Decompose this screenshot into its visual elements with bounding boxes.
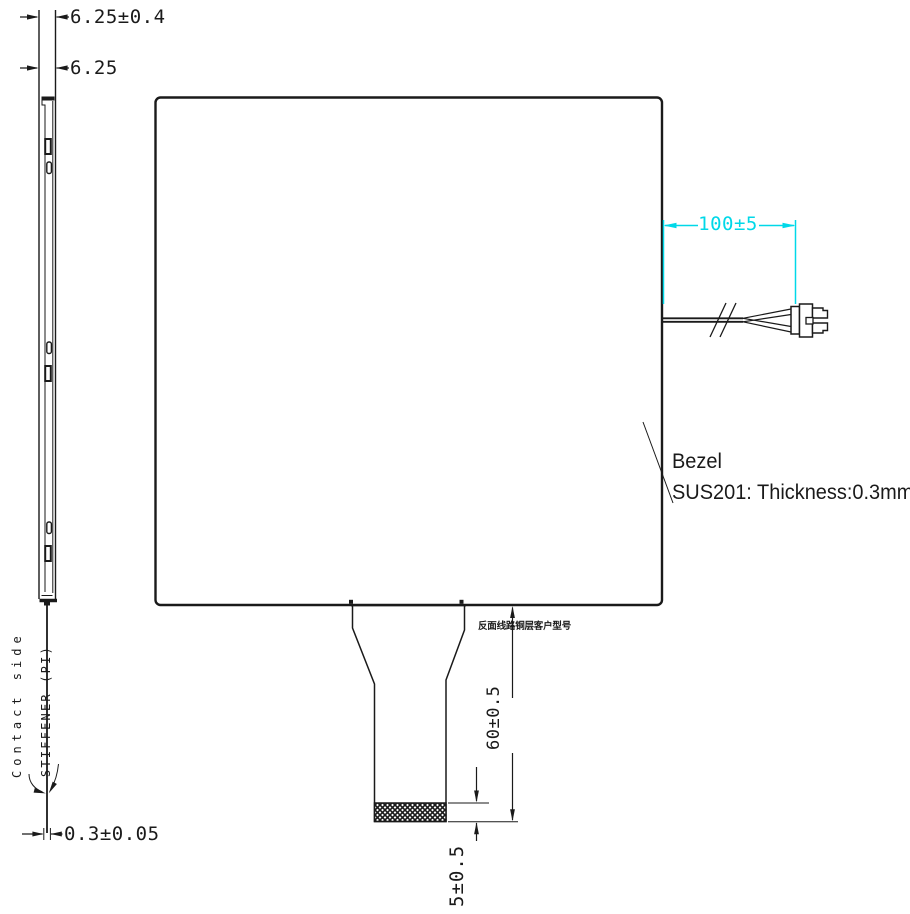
leader-arrow bbox=[34, 788, 46, 793]
dim-arrow-right bbox=[783, 223, 796, 229]
dim-tail-length: 60±0.5 bbox=[486, 686, 503, 750]
dim-arrow-left bbox=[664, 223, 677, 229]
leader-arrow bbox=[49, 782, 57, 794]
dim-arrow bbox=[32, 832, 43, 837]
dim-arrow bbox=[27, 14, 39, 19]
tail-notch-left bbox=[349, 600, 353, 604]
dim-arrow bbox=[56, 65, 68, 70]
side-feature-slot bbox=[45, 366, 51, 381]
side-view-top-bend-step bbox=[42, 100, 45, 111]
engineering-drawing: 6.25±0.4 6.25 0.3±0.05 100±5 Bezel SUS20… bbox=[0, 0, 910, 914]
tail-notch-right bbox=[460, 600, 464, 604]
cable-assembly bbox=[662, 303, 828, 337]
bezel-label-line1: Bezel bbox=[672, 451, 722, 472]
side-feature-pin bbox=[47, 342, 52, 354]
side-view-bottom-tab bbox=[44, 602, 50, 606]
side-feature-pin bbox=[47, 522, 52, 534]
side-feature-slot bbox=[45, 139, 51, 154]
connector-latch bbox=[806, 318, 813, 325]
side-feature-slot bbox=[45, 546, 51, 561]
connector bbox=[791, 304, 828, 337]
label-stiffener: STIFFENER (PI) bbox=[40, 645, 52, 777]
fpc-tail bbox=[349, 600, 466, 822]
side-feature-pin bbox=[47, 162, 52, 174]
drawing-linework bbox=[0, 0, 910, 914]
dim-arrow-up bbox=[474, 822, 479, 834]
dim-fpc-thickness: 0.3±0.05 bbox=[64, 825, 160, 844]
connector-pin-bottom bbox=[813, 323, 828, 333]
wire-fan bbox=[743, 309, 791, 332]
tail-copper-note: 反面线路铜层客户型号 bbox=[478, 621, 571, 632]
break-slash bbox=[710, 303, 726, 337]
dim-arrow-down bbox=[474, 791, 479, 803]
dim-arrow-down bbox=[510, 809, 515, 821]
dim-arrow bbox=[27, 65, 39, 70]
connector-pin-top bbox=[813, 308, 828, 318]
dim-arrow-up bbox=[510, 606, 515, 618]
dim-stiffener-length: 5±0.5 bbox=[448, 845, 467, 907]
stiffener-hatch bbox=[375, 803, 447, 822]
dim-overall-thickness: 6.25±0.4 bbox=[70, 8, 166, 27]
bezel-label-line2: SUS201: Thickness:0.3mm bbox=[672, 482, 910, 503]
dim-stack-thickness: 6.25 bbox=[70, 59, 118, 78]
connector-flange bbox=[791, 307, 800, 335]
break-slash bbox=[720, 303, 736, 337]
dim-arrow bbox=[56, 14, 68, 19]
dim-cable-length: 100±5 bbox=[676, 215, 780, 234]
label-contact-side: Contact side bbox=[11, 631, 23, 778]
fpc-tail-outline bbox=[353, 604, 465, 822]
panel-outline bbox=[156, 98, 663, 606]
